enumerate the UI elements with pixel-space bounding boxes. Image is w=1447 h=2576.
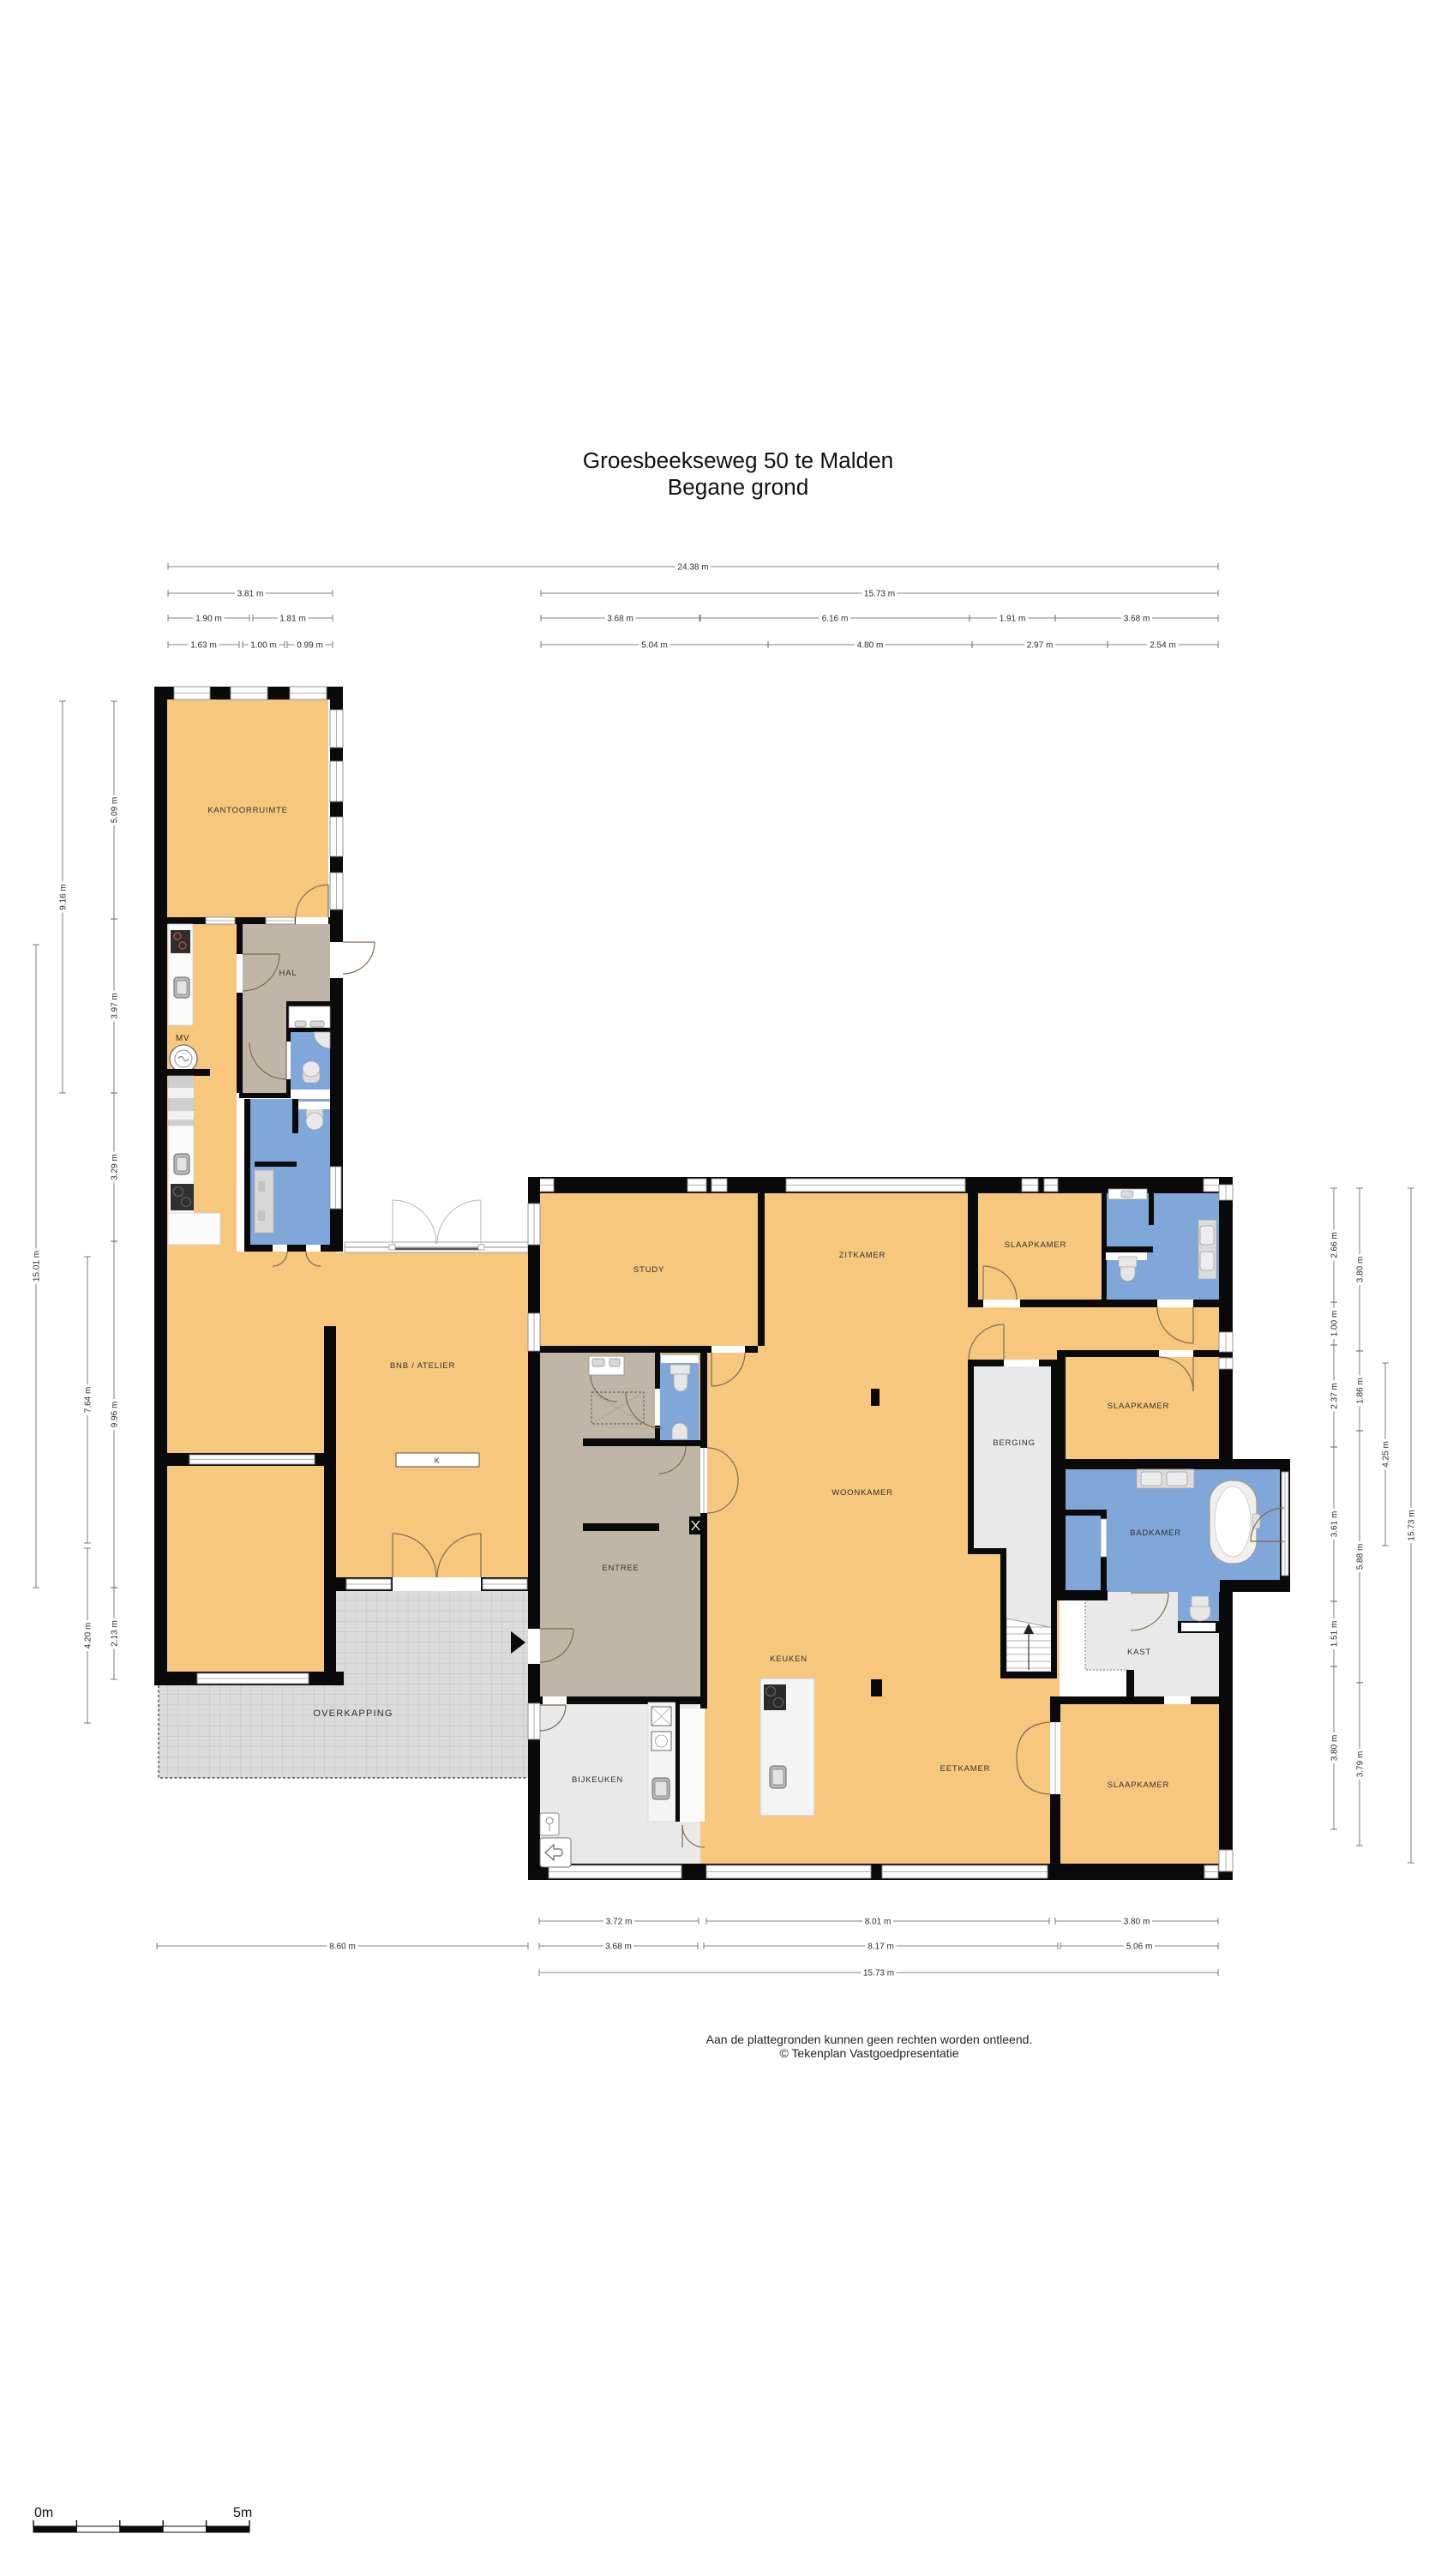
svg-text:3.68 m: 3.68 m — [607, 615, 633, 624]
svg-text:3.68 m: 3.68 m — [1124, 615, 1150, 624]
svg-text:BIJKEUKEN: BIJKEUKEN — [572, 1775, 623, 1785]
svg-text:3.72 m: 3.72 m — [606, 1918, 633, 1927]
svg-text:1.00 m: 1.00 m — [1330, 1311, 1340, 1337]
svg-text:SLAAPKAMER: SLAAPKAMER — [1005, 1240, 1066, 1250]
svg-text:OVERKAPPING: OVERKAPPING — [313, 1708, 393, 1719]
svg-text:SLAAPKAMER: SLAAPKAMER — [1108, 1780, 1169, 1790]
svg-text:5.04 m: 5.04 m — [641, 641, 668, 651]
svg-text:2.54 m: 2.54 m — [1150, 641, 1176, 651]
svg-text:3.80 m: 3.80 m — [1330, 1735, 1340, 1762]
svg-text:9.96 m: 9.96 m — [111, 1402, 120, 1428]
svg-text:8.01 m: 8.01 m — [865, 1918, 892, 1927]
svg-text:15.73 m: 15.73 m — [1408, 1510, 1417, 1540]
svg-text:1.90 m: 1.90 m — [195, 615, 222, 624]
svg-text:WOONKAMER: WOONKAMER — [832, 1488, 893, 1498]
svg-text:1.63 m: 1.63 m — [190, 641, 217, 651]
svg-text:0.99 m: 0.99 m — [297, 641, 323, 651]
svg-text:BNB / ATELIER: BNB / ATELIER — [390, 1361, 455, 1371]
svg-text:3.97 m: 3.97 m — [111, 993, 120, 1019]
svg-text:BADKAMER: BADKAMER — [1130, 1528, 1181, 1538]
svg-text:3.29 m: 3.29 m — [111, 1154, 120, 1180]
svg-text:1.86 m: 1.86 m — [1356, 1378, 1366, 1404]
svg-text:1.51 m: 1.51 m — [1330, 1621, 1340, 1648]
svg-text:6.16 m: 6.16 m — [822, 615, 849, 624]
svg-text:2.37 m: 2.37 m — [1330, 1383, 1340, 1409]
svg-text:7.64 m: 7.64 m — [84, 1387, 93, 1414]
svg-text:SLAAPKAMER: SLAAPKAMER — [1108, 1402, 1169, 1411]
svg-text:KAST: KAST — [1127, 1648, 1151, 1657]
svg-text:STUDY: STUDY — [633, 1265, 664, 1275]
svg-text:2.13 m: 2.13 m — [111, 1620, 120, 1647]
svg-text:1.81 m: 1.81 m — [279, 615, 306, 624]
svg-text:5.88 m: 5.88 m — [1356, 1544, 1366, 1570]
svg-text:24.38 m: 24.38 m — [677, 563, 708, 573]
svg-text:4.80 m: 4.80 m — [857, 641, 884, 651]
svg-text:K: K — [435, 1456, 441, 1465]
svg-text:15.73 m: 15.73 m — [863, 1969, 894, 1979]
svg-text:9.16 m: 9.16 m — [59, 884, 69, 910]
svg-text:MV: MV — [176, 1034, 189, 1043]
svg-text:KANTOORRUIMTE: KANTOORRUIMTE — [207, 806, 288, 815]
svg-text:2.66 m: 2.66 m — [1330, 1232, 1340, 1258]
svg-text:3.80 m: 3.80 m — [1124, 1918, 1150, 1927]
svg-text:8.17 m: 8.17 m — [868, 1943, 894, 1952]
svg-text:15.73 m: 15.73 m — [864, 590, 895, 599]
svg-text:1.00 m: 1.00 m — [250, 641, 277, 651]
svg-text:© Tekenplan Vastgoedpresentati: © Tekenplan Vastgoedpresentatie — [779, 2046, 958, 2060]
svg-text:5.09 m: 5.09 m — [111, 797, 120, 824]
svg-text:5m: 5m — [233, 2506, 252, 2520]
svg-text:Groesbeekseweg 50 te Malden: Groesbeekseweg 50 te Malden — [583, 447, 893, 473]
svg-text:2.97 m: 2.97 m — [1027, 641, 1054, 651]
svg-text:Begane grond: Begane grond — [668, 474, 809, 500]
svg-text:HAL: HAL — [279, 969, 297, 978]
svg-text:Aan de plattegronden kunnen ge: Aan de plattegronden kunnen geen rechten… — [706, 2033, 1033, 2046]
svg-text:3.81 m: 3.81 m — [237, 590, 264, 599]
svg-text:ZITKAMER: ZITKAMER — [839, 1251, 886, 1260]
svg-text:15.01 m: 15.01 m — [33, 1251, 42, 1282]
svg-text:BERGING: BERGING — [993, 1438, 1035, 1448]
svg-text:3.68 m: 3.68 m — [605, 1943, 632, 1952]
svg-text:1.91 m: 1.91 m — [1000, 615, 1026, 624]
svg-text:3.61 m: 3.61 m — [1330, 1511, 1340, 1538]
svg-text:3.79 m: 3.79 m — [1356, 1751, 1366, 1778]
svg-text:EETKAMER: EETKAMER — [940, 1764, 991, 1774]
svg-text:8.60 m: 8.60 m — [329, 1943, 356, 1952]
svg-text:4.25 m: 4.25 m — [1382, 1441, 1391, 1468]
svg-text:ENTREE: ENTREE — [602, 1564, 639, 1573]
svg-text:KEUKEN: KEUKEN — [770, 1654, 808, 1664]
svg-text:3.80 m: 3.80 m — [1356, 1257, 1366, 1283]
svg-text:5.06 m: 5.06 m — [1126, 1943, 1153, 1952]
svg-text:4.20 m: 4.20 m — [84, 1623, 93, 1649]
svg-text:0m: 0m — [34, 2506, 53, 2520]
